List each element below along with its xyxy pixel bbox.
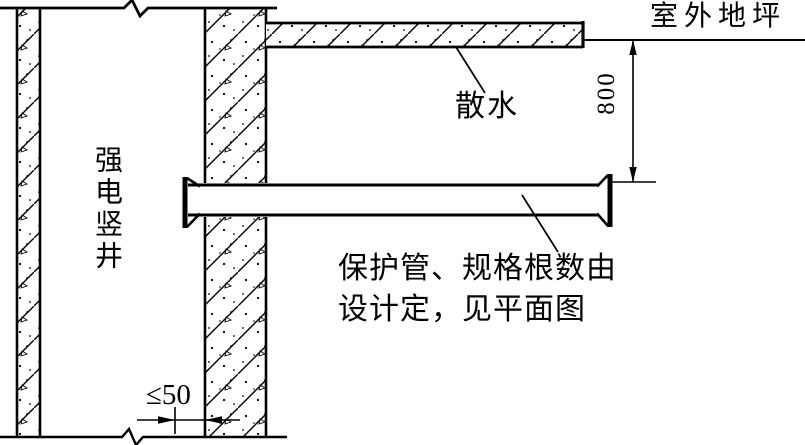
pipe-note-line2: 设计定，见平面图 [338, 295, 586, 325]
leader-apron [456, 47, 485, 93]
outdoor-ground-label: 室外地坪 [650, 3, 786, 31]
drawing-canvas: 室外地坪 散水 强电竖井 保护管、规格根数由 设计定，见平面图 800 ≤50 [0, 0, 805, 445]
shaft-wall-right [205, 8, 266, 437]
dimension-50-label: ≤50 [146, 381, 191, 410]
shaft-wall-left [17, 8, 40, 437]
pipe-note-line1: 保护管、规格根数由 [338, 254, 617, 284]
apron-slab [266, 21, 583, 48]
apron-label: 散水 [455, 92, 519, 122]
dimension-800-label: 800 [594, 57, 620, 129]
shaft-label: 强电竖井 [92, 145, 120, 273]
